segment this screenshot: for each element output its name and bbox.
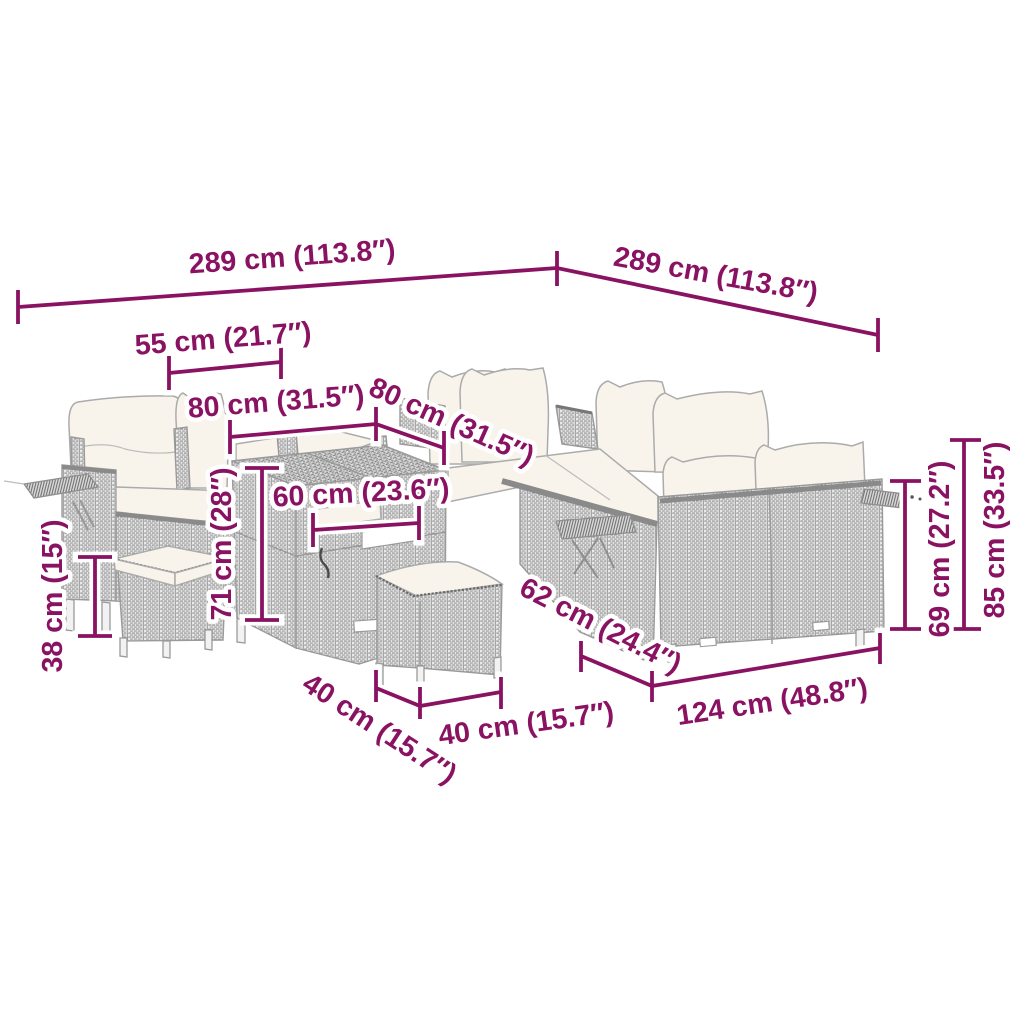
svg-text:71 cm (28″): 71 cm (28″) <box>206 467 238 620</box>
svg-text:69 cm (27.2″): 69 cm (27.2″) <box>924 461 956 638</box>
svg-text:38 cm (15″): 38 cm (15″) <box>37 519 69 672</box>
svg-text:85 cm (33.5″): 85 cm (33.5″) <box>979 442 1011 619</box>
